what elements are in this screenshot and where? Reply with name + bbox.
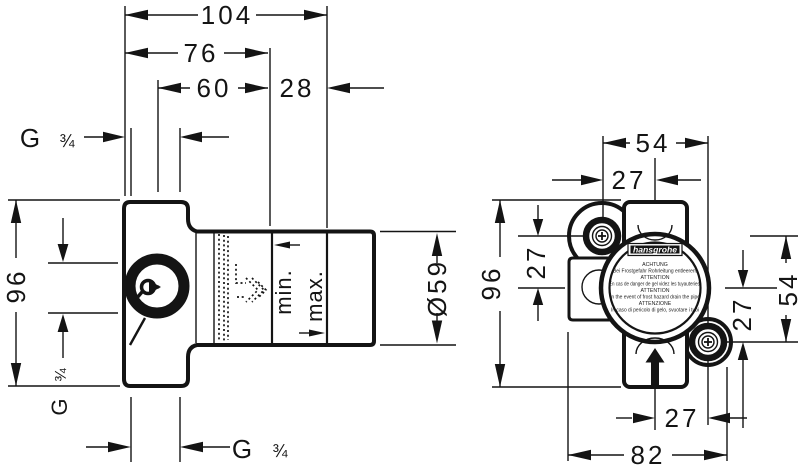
screw-port-icon	[586, 220, 618, 252]
dim-label-76: 76	[184, 38, 219, 68]
warning-line: ACHTUNG	[642, 262, 668, 268]
drawing-canvas: 104 76 60 28 G ¾	[0, 0, 800, 473]
warning-line: En cas de danger de gel videz les tuyaut…	[609, 282, 701, 288]
dim-label-27-right: 27	[727, 297, 757, 332]
dim-label-27-bottom: 27	[665, 403, 700, 433]
dim-label-104: 104	[201, 0, 253, 30]
dim-label-82: 82	[631, 440, 666, 470]
dim-label-96-right: 96	[476, 266, 506, 301]
warning-line: In caso di pericolo di gelo, svuotare i …	[611, 308, 699, 314]
dim-label-dia59: Ø59	[422, 259, 452, 317]
warning-line: ATTENZIONE	[639, 301, 672, 307]
dim-label-54-right: 54	[773, 272, 800, 307]
technical-drawing-page: 104 76 60 28 G ¾	[0, 0, 800, 473]
dim-label-27-left: 27	[521, 245, 551, 280]
thread-label-g: G	[20, 123, 40, 153]
brand-logo: hansgrohe	[633, 245, 678, 254]
warning-line: ATTENTION	[640, 275, 669, 281]
warning-line: ATTENTION	[640, 288, 669, 294]
thread-label-g: G	[47, 398, 72, 415]
dim-label-28: 28	[280, 73, 315, 103]
warning-line: In the event of frost hazard drain the p…	[610, 295, 700, 301]
screw-port-icon	[692, 326, 724, 358]
dim-label-60: 60	[197, 73, 232, 103]
thread-label-frac: ¾	[272, 441, 288, 461]
max-depth-label: max.	[302, 270, 327, 322]
min-depth-label: min.	[271, 269, 296, 315]
warning-line: Bei Frostgefahr Rohrleitung entleeren!	[613, 269, 697, 275]
thread-label-frac: ¾	[53, 368, 70, 382]
thread-label-frac: ¾	[59, 131, 75, 151]
dim-label-96-left: 96	[1, 269, 31, 304]
dim-label-27-top: 27	[612, 165, 647, 195]
dim-label-54-top: 54	[636, 128, 671, 158]
thread-label-g: G	[232, 434, 252, 464]
